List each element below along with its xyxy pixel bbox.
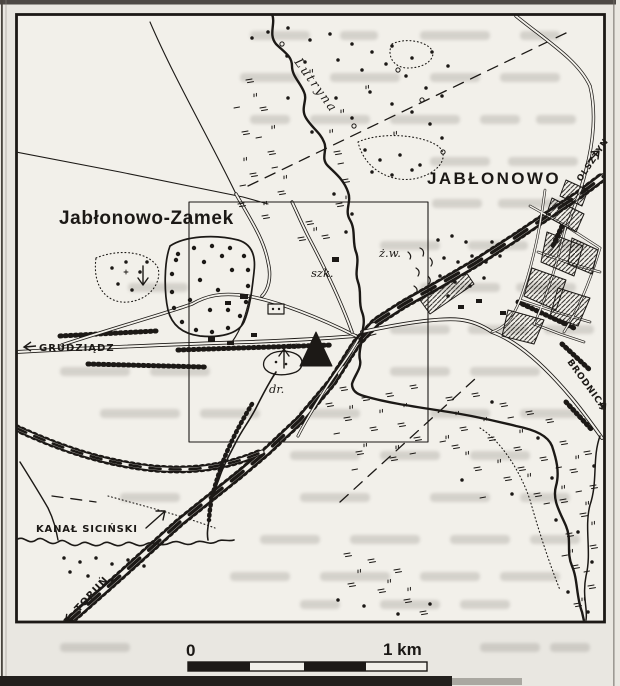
abbrev-road: dr.: [269, 382, 284, 396]
scale-km-label: 1 km: [383, 640, 422, 659]
town-label-jablonowo-zamek: Jabłonowo-Zamek: [59, 208, 234, 229]
manor-building: [268, 304, 284, 314]
scanned-book-page: JABŁONOWO Jabłonowo-Zamek Lutryna szk. ż…: [0, 0, 620, 686]
scale-zero-label: 0: [186, 641, 195, 660]
spot-height-label: 16: [288, 342, 298, 351]
abbrev-school: szk.: [311, 266, 334, 280]
canal-label: KANAŁ SICIŃSKI: [36, 522, 138, 535]
abbrev-gravel-pit: ż.w.: [378, 246, 401, 260]
svg-text:GRUDZIĄDZ: GRUDZIĄDZ: [39, 343, 115, 354]
sketch-map-figure: JABŁONOWO Jabłonowo-Zamek Lutryna szk. ż…: [0, 0, 620, 686]
town-label-jablonowo: JABŁONOWO: [427, 169, 561, 188]
